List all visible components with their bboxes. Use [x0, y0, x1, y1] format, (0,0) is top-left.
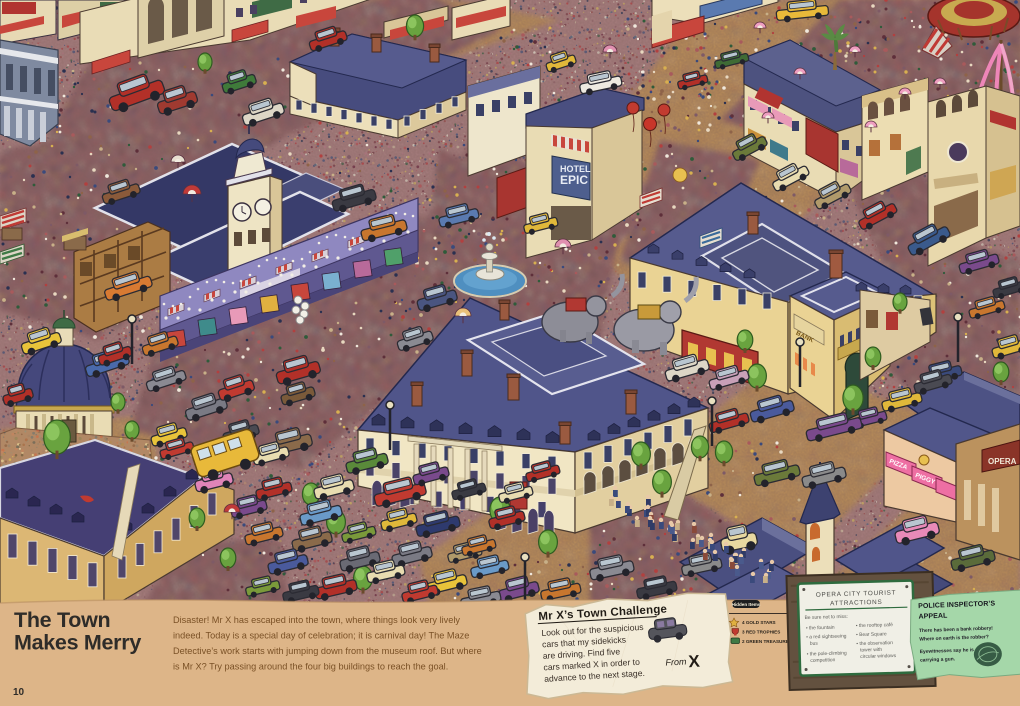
svg-text:• the pole-climbing: • the pole-climbing	[807, 650, 847, 657]
svg-text:carrying a gun.: carrying a gun.	[920, 656, 956, 663]
svg-text:competition: competition	[810, 657, 835, 664]
svg-text:Makes Merry: Makes Merry	[14, 631, 141, 655]
svg-text:Detective’s work starts with j: Detective’s work starts with jumping dow…	[173, 646, 482, 656]
svg-text:circular windows: circular windows	[860, 653, 897, 660]
svg-text:The Town: The Town	[14, 608, 110, 632]
svg-text:Disaster! Mr X has escaped int: Disaster! Mr X has escaped into the town…	[173, 615, 460, 625]
svg-text:OPERA: OPERA	[988, 457, 1017, 466]
svg-text:Be sure not to miss:: Be sure not to miss:	[805, 614, 848, 621]
svg-text:APPEAL: APPEAL	[918, 613, 948, 621]
svg-text:• a red sightseeing: • a red sightseeing	[806, 633, 847, 640]
svg-text:• Bear Square: • Bear Square	[856, 631, 887, 638]
svg-text:X: X	[688, 652, 701, 672]
svg-text:• the observation: • the observation	[856, 640, 893, 647]
svg-text:• the rooftop café: • the rooftop café	[856, 622, 893, 629]
svg-text:Hidden Items: Hidden Items	[732, 602, 761, 607]
svg-text:EPIC: EPIC	[560, 173, 588, 187]
svg-text:From: From	[665, 656, 687, 667]
svg-text:3 RED TROPHIES: 3 RED TROPHIES	[742, 630, 780, 635]
svg-text:tower with: tower with	[860, 647, 882, 654]
svg-text:10: 10	[13, 687, 25, 698]
svg-text:indeed. Today is a special day: indeed. Today is a special day of celebr…	[173, 631, 469, 641]
svg-text:is Mr X? Try passing around th: is Mr X? Try passing around the four big…	[173, 662, 448, 672]
svg-text:• the fountain: • the fountain	[806, 625, 835, 632]
svg-text:ATTRACTIONS: ATTRACTIONS	[830, 599, 883, 607]
svg-text:4 GOLD STARS: 4 GOLD STARS	[742, 620, 776, 625]
svg-text:bus: bus	[810, 641, 819, 647]
